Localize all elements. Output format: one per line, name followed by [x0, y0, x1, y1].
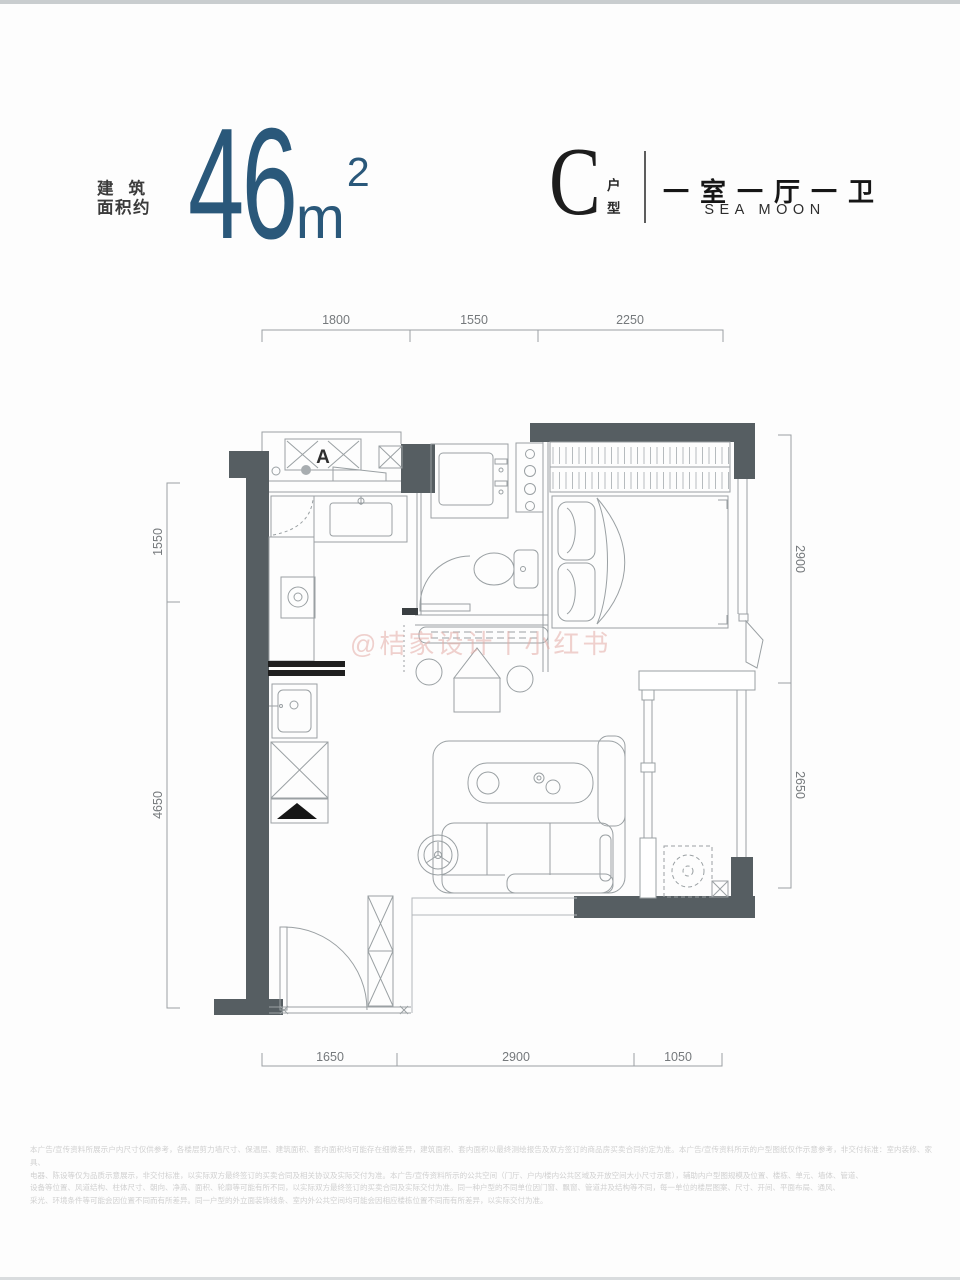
dim-top-1: 1800	[322, 313, 350, 327]
bathroom-vanity	[431, 444, 508, 518]
side-table	[418, 835, 458, 875]
area-number: 46	[188, 105, 295, 263]
kitchen-window-casement	[333, 467, 386, 481]
dimension-bottom-labels: 1650 2900 1050	[316, 1050, 692, 1064]
area-label: 建筑 面积约	[97, 180, 160, 218]
bathroom-door	[420, 556, 470, 611]
dimension-right-labels: 2900 2650	[793, 545, 807, 799]
entry-door	[280, 927, 408, 1014]
disclaimer: 本广告/宣传资料所展示户内尺寸仅供参考，各楼层剪力墙尺寸、保温层、建筑面积、套内…	[30, 1144, 932, 1208]
coffee-table	[468, 763, 593, 803]
watermark: @桔家设计丨小红书	[350, 624, 611, 661]
dim-top-2: 1550	[460, 313, 488, 327]
dim-right-2: 2650	[793, 771, 807, 799]
area-value: 46 m 2	[188, 105, 370, 263]
kitchen-sink	[314, 496, 407, 542]
shower-panel	[516, 443, 543, 512]
dimension-right	[778, 435, 791, 888]
kitchen-counter	[269, 537, 314, 661]
shoe-cabinet	[368, 896, 393, 1006]
pillow	[558, 563, 595, 621]
photo-edge-top	[0, 0, 960, 4]
flue-shaft	[379, 446, 402, 468]
dim-top-3: 2250	[616, 313, 644, 327]
stool-right	[507, 666, 533, 692]
cooktop	[281, 577, 315, 618]
balcony-flue	[712, 881, 728, 897]
dim-bottom-1: 1650	[316, 1050, 344, 1064]
dim-bottom-2: 2900	[502, 1050, 530, 1064]
unit-type-label: 户 型	[607, 179, 621, 215]
bedroom-window	[738, 479, 763, 668]
platform-a-label: A	[316, 447, 330, 468]
rug	[433, 741, 625, 893]
chaise	[598, 736, 625, 826]
brand-name: SEA MOON	[655, 202, 875, 218]
floorplan-page: 建筑 面积约 46 m 2 C 户 型 一室一厅一卫 SEA MOON 1800…	[0, 0, 960, 1280]
unit-type-char2: 型	[607, 202, 621, 216]
desk	[454, 678, 500, 712]
utility-column	[269, 684, 328, 823]
area-unit: m	[296, 189, 345, 248]
unit-type-char1: 户	[607, 179, 621, 193]
walls	[214, 423, 755, 1015]
area-label-line1: 建筑	[97, 180, 160, 199]
area-label-line2: 面积约	[97, 199, 160, 218]
dim-bottom-3: 1050	[664, 1050, 692, 1064]
stool-left	[416, 659, 442, 685]
dishwasher	[269, 684, 317, 738]
disclaimer-line: 电器、陈设等仅为品质示意展示，非交付标准，以实际双方最终签订的买卖合同及相关协议…	[30, 1170, 932, 1183]
corner-cabinet	[271, 496, 314, 537]
bed	[552, 496, 728, 628]
dimension-top	[262, 330, 723, 342]
area-exponent: 2	[347, 152, 370, 193]
header-divider	[644, 151, 646, 223]
fridge-marker	[271, 799, 328, 823]
disclaimer-line: 本广告/宣传资料所展示户内尺寸仅供参考，各楼层剪力墙尺寸、保温层、建筑面积、套内…	[30, 1144, 932, 1170]
sofa	[442, 736, 625, 893]
kitchen-sliding-track	[268, 661, 345, 676]
dimension-left	[167, 483, 180, 1008]
floor-plan: 1800 1550 2250 1650 2900 1050 1550 4650	[120, 290, 820, 1120]
beam	[639, 671, 755, 690]
window-casement	[746, 621, 763, 668]
drain-icon	[301, 465, 311, 475]
unit-boundary	[412, 898, 577, 1013]
tall-cabinet	[271, 742, 328, 798]
equipment-platform	[262, 432, 402, 492]
living-room	[418, 736, 625, 893]
balcony-partition	[640, 690, 656, 898]
disclaimer-line: 设备等位置、风道结构、柱体尺寸、朝向、净高、面积、轮廓等可能有所不同，以实际双方…	[30, 1182, 932, 1195]
dimension-top-labels: 1800 1550 2250	[322, 313, 644, 327]
dimension-left-labels: 1550 4650	[151, 528, 165, 819]
dim-left-1: 1550	[151, 528, 165, 556]
disclaimer-line: 采光、环境条件等可能会因位置不同而有所差异。同一户型的外立面装饰线条、室内外公共…	[30, 1195, 932, 1208]
entry	[269, 896, 577, 1014]
pipe-icon	[272, 467, 280, 475]
washing-machine	[664, 846, 712, 897]
dim-right-1: 2900	[793, 545, 807, 573]
unit-letter: C	[549, 133, 601, 230]
dim-left-2: 4650	[151, 791, 165, 819]
toilet	[474, 550, 538, 588]
pillow	[558, 502, 595, 560]
